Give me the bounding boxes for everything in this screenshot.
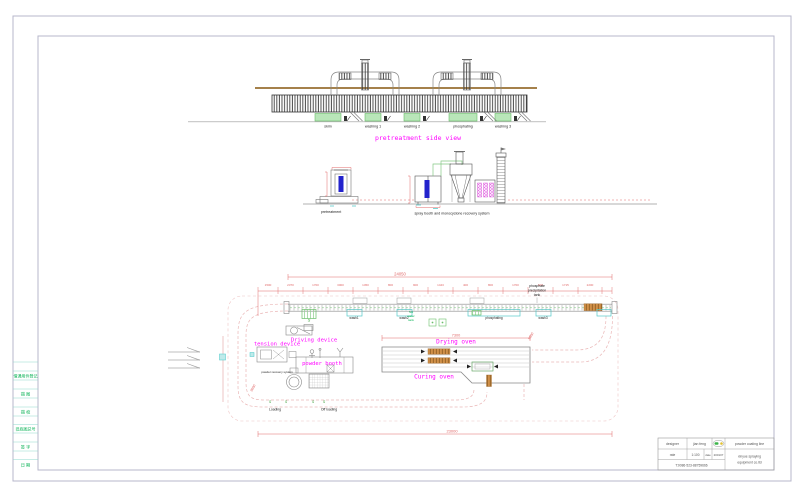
tank-label: washing 2 <box>404 125 420 129</box>
project-title: powder coating line <box>735 442 764 446</box>
strip-row-label: 描 图 <box>21 391 31 398</box>
segment-dim: 1700 <box>312 283 319 287</box>
segment-dim: 2370 <box>287 283 294 287</box>
recovery-filter <box>309 374 329 388</box>
strip-row-label: 签 字 <box>21 444 31 450</box>
loading-label: Loading <box>269 408 281 412</box>
tank-washing2 <box>404 114 420 122</box>
tank-phosphating <box>449 114 477 122</box>
hanger-hook: S <box>308 318 311 323</box>
exhaust-block <box>487 375 492 387</box>
strip-row-label: 借通用件登记 <box>14 373 38 379</box>
segment-dim: 1715 <box>562 283 569 287</box>
note-line: tank <box>408 318 414 322</box>
workpiece-blue <box>339 176 344 192</box>
section-marker <box>220 354 226 360</box>
conveyor-platform <box>272 95 527 112</box>
filter-cartridge <box>490 183 494 197</box>
date-value: 200107 <box>714 453 724 457</box>
tank-label: skim <box>324 125 331 129</box>
tension-device-label: tension device <box>254 342 300 348</box>
scale-value: 1:100 <box>692 453 700 457</box>
burner-block <box>428 349 450 355</box>
tank-label: phosphating <box>453 125 473 129</box>
tank-label: washing 1 <box>365 125 381 129</box>
sheet-background <box>0 0 800 493</box>
tank-skim <box>315 114 341 122</box>
tank-washing3 <box>495 114 511 122</box>
segment-dim: 900 <box>413 283 418 287</box>
strip-row-label: 旧底图总号 <box>16 426 36 432</box>
total-dimension: 24050 <box>394 272 406 277</box>
scale-label: rate <box>670 453 676 457</box>
powder-recovery-label: powder recovery system <box>261 370 293 374</box>
oven-dimension: 7300 <box>452 334 460 338</box>
powder-booth-label: powder booth <box>302 361 342 367</box>
plan-tank-label: phosphating <box>485 316 503 320</box>
segment-dim: 2200 <box>587 283 594 287</box>
strip-row-label: 描 校 <box>21 409 31 416</box>
drying-oven-label: Drying oven <box>436 339 476 346</box>
note-line: phosphate <box>529 284 545 288</box>
date-label: date <box>705 453 711 457</box>
curing-oven-label: Curing oven <box>414 374 454 381</box>
tank-washing1 <box>365 114 381 122</box>
phone-number: T:0086-523-88759666 <box>675 464 707 468</box>
filter-cartridge <box>484 183 488 197</box>
spray-booth-label: spray booth and monocyclone recovery sys… <box>414 212 489 216</box>
plan-tank-label: wash3 <box>538 316 547 320</box>
drawing-sheet: 借通用件登记 描 图 描 校 旧底图总号 签 字 日 期 <box>0 0 800 493</box>
segment-dim: 3000 <box>337 283 344 287</box>
note-line: precipitation <box>528 289 546 293</box>
designer-label: designer <box>666 442 680 446</box>
pretreatment-elevation-label: pretreatment <box>321 210 341 214</box>
company-name-line2: equipment co.ltd <box>737 461 761 465</box>
tank-label: washing 3 <box>495 125 511 129</box>
offloading-label: Off loading <box>321 408 337 412</box>
segment-dim: 1700 <box>512 283 519 287</box>
note-line: tank <box>534 293 541 297</box>
company-name-line1: xinyue spraying <box>738 455 761 459</box>
workpiece-blue <box>425 180 430 198</box>
segment-dim: 1450 <box>362 283 369 287</box>
designer-value: jian feng <box>692 442 706 446</box>
cad-canvas: 借通用件登记 描 图 描 校 旧底图总号 签 字 日 期 <box>0 0 800 493</box>
burner-block <box>428 358 450 364</box>
filter-cartridge <box>478 183 482 197</box>
segment-dim: 800 <box>488 283 493 287</box>
segment-dim: 800 <box>388 283 393 287</box>
company-logo-icon <box>713 440 724 446</box>
segment-dim: 400 <box>463 283 468 287</box>
segment-dim: 1500 <box>265 283 272 287</box>
side-view-title: pretreatment side view <box>375 134 461 142</box>
plan-tank-label: wash1 <box>349 316 358 320</box>
bottom-dim-text: 23000 <box>446 429 458 434</box>
segment-dim: 1443 <box>437 283 444 287</box>
